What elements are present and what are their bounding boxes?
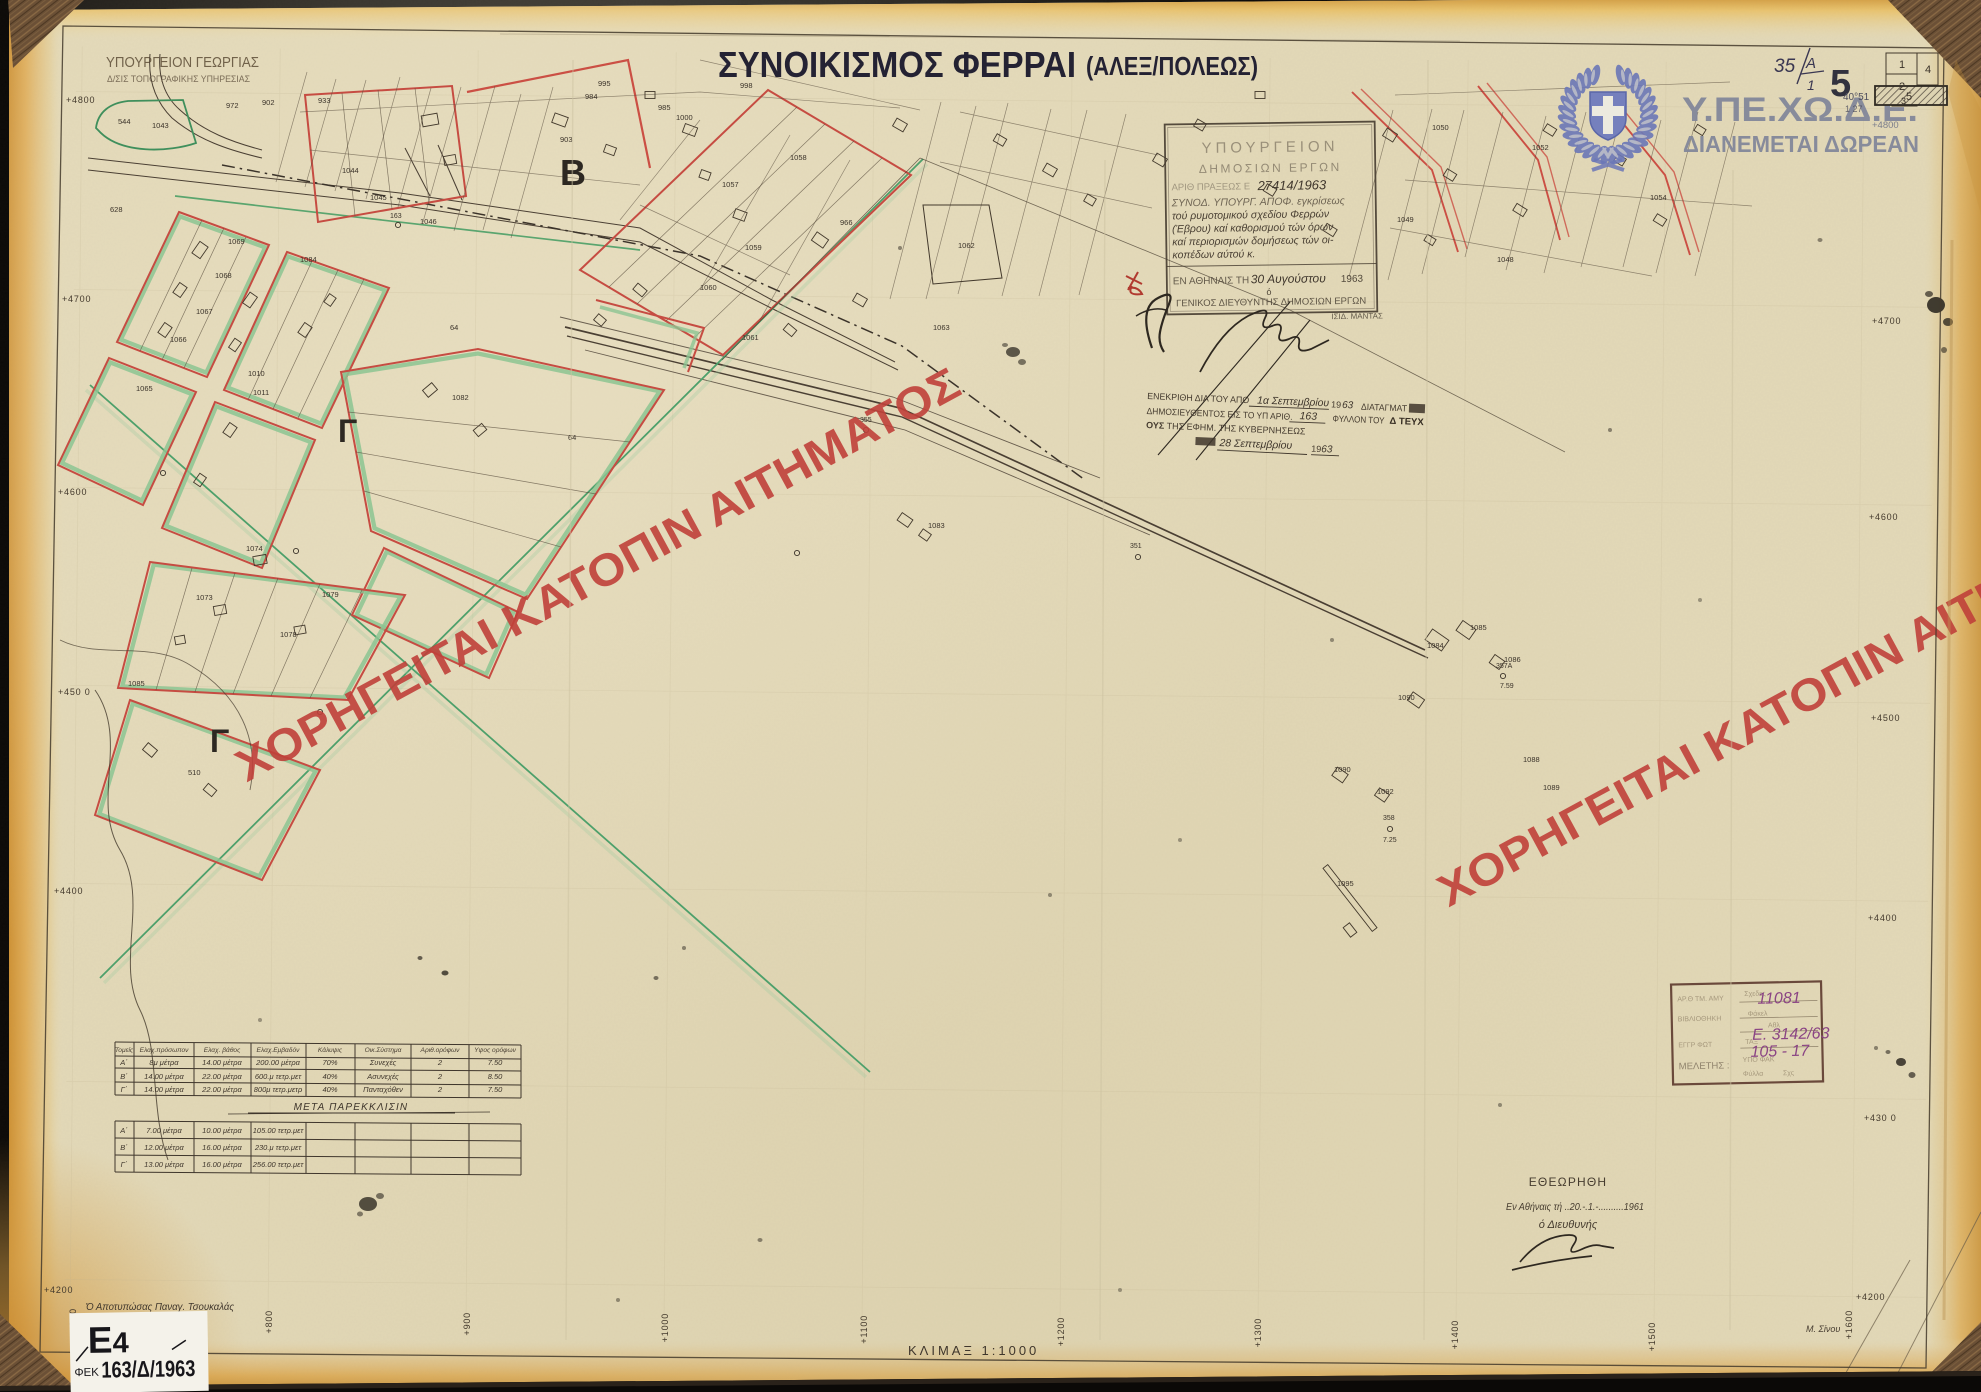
svg-text:230.μ τετρ.μετ: 230.μ τετρ.μετ — [254, 1143, 302, 1152]
svg-text:ΕΘΕΩΡΗΘΗ: ΕΘΕΩΡΗΘΗ — [1529, 1175, 1608, 1189]
svg-text:1084: 1084 — [300, 255, 317, 264]
svg-text:+4200: +4200 — [1856, 1292, 1885, 1302]
svg-text:8.50: 8.50 — [488, 1072, 503, 1081]
svg-text:1050: 1050 — [1432, 123, 1449, 132]
svg-text:ό Διευθυνής: ό Διευθυνής — [1539, 1219, 1598, 1231]
svg-text:Ε. 3142/63: Ε. 3142/63 — [1752, 1025, 1830, 1044]
svg-text:510: 510 — [188, 768, 201, 777]
svg-text:35: 35 — [1774, 56, 1796, 77]
svg-text:1057: 1057 — [722, 180, 739, 189]
svg-text:Δ/ΣΙΣ ΤΟΠΟΓΡΑΦΙΚΗΣ ΥΠΗΡΕΣΙΑΣ: Δ/ΣΙΣ ΤΟΠΟΓΡΑΦΙΚΗΣ ΥΠΗΡΕΣΙΑΣ — [107, 74, 250, 84]
svg-text:1068: 1068 — [215, 271, 232, 280]
svg-text:1058: 1058 — [790, 153, 807, 162]
svg-text:63: 63 — [1342, 400, 1354, 411]
svg-text:κοπέδων αύτού κ.: κοπέδων αύτού κ. — [1172, 248, 1255, 261]
svg-text:256.00 τετρ.μετ: 256.00 τετρ.μετ — [252, 1160, 305, 1169]
svg-text:ΕΝ ΑΘΗΝΑΙΣ ΤΗ: ΕΝ ΑΘΗΝΑΙΣ ΤΗ — [1173, 275, 1250, 287]
svg-text:12.00 μέτρα: 12.00 μέτρα — [144, 1143, 184, 1152]
svg-text:19: 19 — [1311, 444, 1321, 454]
svg-text:+4400: +4400 — [54, 886, 83, 896]
svg-text:14.00 μέτρα: 14.00 μέτρα — [144, 1085, 184, 1094]
svg-text:7.00 μέτρα: 7.00 μέτρα — [146, 1126, 182, 1135]
svg-text:1090: 1090 — [1398, 693, 1415, 702]
svg-text:+1200: +1200 — [1056, 1317, 1066, 1346]
svg-text:1069: 1069 — [228, 237, 245, 246]
svg-text:Α: Α — [1805, 55, 1816, 72]
svg-text:1060: 1060 — [700, 283, 717, 292]
svg-text:2: 2 — [437, 1085, 443, 1094]
svg-text:Ελαχ.πρόσωπον: Ελαχ.πρόσωπον — [140, 1046, 190, 1054]
svg-text:Υψος ορόφων: Υψος ορόφων — [474, 1046, 516, 1054]
svg-text:7.25: 7.25 — [1383, 837, 1397, 844]
svg-text:22.00 μέτρα: 22.00 μέτρα — [201, 1085, 242, 1094]
svg-text:1073: 1073 — [196, 593, 213, 602]
svg-text:2: 2 — [437, 1072, 443, 1081]
svg-text:1085: 1085 — [1470, 623, 1487, 632]
svg-text:14.00 μέτρα: 14.00 μέτρα — [144, 1072, 184, 1081]
svg-text:Γ΄: Γ΄ — [121, 1160, 128, 1169]
svg-text:1061: 1061 — [742, 333, 759, 342]
svg-text:933: 933 — [318, 96, 331, 105]
svg-text:καί περιορισμών δομήσεως τών ο: καί περιορισμών δομήσεως τών οι- — [1172, 234, 1334, 248]
svg-text:ΒΙΒΛΙΟΘΗΚΗ: ΒΙΒΛΙΟΘΗΚΗ — [1678, 1015, 1722, 1023]
svg-text:10.00 μέτρα: 10.00 μέτρα — [202, 1126, 242, 1135]
svg-text:+1600: +1600 — [1844, 1310, 1854, 1339]
svg-text:1090: 1090 — [1334, 765, 1351, 774]
svg-text:1079: 1079 — [322, 590, 339, 599]
svg-text:(ΑΛΕΞ/ΠΟΛΕΩΣ): (ΑΛΕΞ/ΠΟΛΕΩΣ) — [1086, 53, 1258, 81]
svg-text:ΑΡ.Θ ΤΜ. ΑΜΥ: ΑΡ.Θ ΤΜ. ΑΜΥ — [1677, 995, 1724, 1003]
svg-text:+4200: +4200 — [44, 1285, 73, 1295]
svg-text:70%: 70% — [322, 1058, 337, 1067]
svg-text:+1500: +1500 — [1647, 1322, 1657, 1351]
svg-text:ΦΕΚ: ΦΕΚ — [74, 1367, 99, 1379]
svg-text:14.00 μέτρα: 14.00 μέτρα — [202, 1058, 242, 1067]
svg-text:+1100: +1100 — [859, 1315, 869, 1344]
svg-text:1010: 1010 — [248, 369, 265, 378]
svg-text:Κάλυψις: Κάλυψις — [318, 1046, 343, 1054]
svg-text:357A: 357A — [1496, 663, 1513, 670]
svg-text:ΜΕΛΕΤΗΣ :: ΜΕΛΕΤΗΣ : — [1679, 1060, 1730, 1072]
svg-text:8μ μέτρα: 8μ μέτρα — [149, 1058, 179, 1067]
svg-text:27414/1963: 27414/1963 — [1256, 177, 1327, 193]
svg-text:1046: 1046 — [420, 217, 437, 226]
svg-text:1067: 1067 — [196, 307, 213, 316]
svg-text:1 27: 1 27 — [1845, 104, 1863, 114]
svg-text:16.00 μέτρα: 16.00 μέτρα — [202, 1143, 242, 1152]
svg-text:ΔΗΜΟΣΙΩΝ ΕΡΓΩΝ: ΔΗΜΟΣΙΩΝ ΕΡΓΩΝ — [1199, 160, 1342, 176]
svg-text:ΦΥΛΛΟΝ ΤΟΥ: ΦΥΛΛΟΝ ΤΟΥ — [1332, 414, 1384, 426]
svg-text:163: 163 — [1299, 410, 1317, 423]
svg-text:Εν Αθήναις τή ..20.-.1.-......: Εν Αθήναις τή ..20.-.1.-..........1961 — [1506, 1201, 1644, 1213]
svg-text:1065: 1065 — [136, 384, 153, 393]
svg-text:+450 0: +450 0 — [58, 687, 91, 697]
svg-text:1085: 1085 — [128, 679, 145, 688]
svg-text:966: 966 — [840, 218, 853, 227]
svg-text:+4700: +4700 — [1872, 316, 1901, 326]
svg-text:Ασυνεχές: Ασυνεχές — [366, 1072, 399, 1081]
svg-text:19: 19 — [1331, 399, 1341, 409]
svg-text:1082: 1082 — [452, 393, 469, 402]
svg-text:902: 902 — [262, 98, 275, 107]
svg-text:ΑΡΙΘ ΠΡΑΞΕΩΣ Ε: ΑΡΙΘ ΠΡΑΞΕΩΣ Ε — [1171, 181, 1250, 193]
svg-text:1066: 1066 — [170, 335, 187, 344]
svg-text:Ελαχ.Εμβαδόν: Ελαχ.Εμβαδόν — [257, 1046, 301, 1054]
svg-text:1078: 1078 — [280, 630, 297, 639]
svg-text:+900: +900 — [462, 1312, 472, 1335]
svg-text:1044: 1044 — [342, 166, 359, 175]
svg-text:1963: 1963 — [1341, 274, 1364, 285]
svg-text:2: 2 — [437, 1058, 443, 1067]
svg-text:4: 4 — [1925, 64, 1931, 76]
svg-text:16.00 μέτρα: 16.00 μέτρα — [202, 1160, 242, 1169]
svg-text:995: 995 — [598, 79, 611, 88]
svg-text:Γ΄: Γ΄ — [121, 1085, 128, 1094]
svg-text:2: 2 — [1899, 81, 1905, 93]
svg-text:544: 544 — [118, 117, 131, 126]
svg-text:Β΄: Β΄ — [120, 1143, 128, 1152]
svg-text:Α΄: Α΄ — [119, 1058, 128, 1067]
svg-text:+4700: +4700 — [62, 294, 91, 304]
svg-text:Β΄: Β΄ — [120, 1072, 128, 1081]
svg-text:ό: ό — [1266, 287, 1271, 297]
svg-text:7.50: 7.50 — [488, 1058, 503, 1067]
svg-text:ΔΙΑΝΕΜΕΤΑΙ ΔΩΡΕΑΝ: ΔΙΑΝΕΜΕΤΑΙ ΔΩΡΕΑΝ — [1683, 131, 1919, 157]
svg-text:5: 5 — [1906, 91, 1912, 103]
svg-text:64: 64 — [450, 323, 458, 332]
svg-text:1: 1 — [1899, 59, 1905, 71]
svg-text:600.μ τετρ.μετ: 600.μ τετρ.μετ — [255, 1072, 302, 1081]
svg-text:163/Δ/1963: 163/Δ/1963 — [101, 1355, 195, 1383]
svg-text:985: 985 — [658, 103, 671, 112]
svg-text:13.00 μέτρα: 13.00 μέτρα — [144, 1160, 184, 1169]
svg-text:Τομείς: Τομείς — [115, 1046, 134, 1054]
svg-text:(Έβρου) καί καθορισμού τών όρω: (Έβρου) καί καθορισμού τών όρων — [1172, 221, 1334, 235]
svg-text:+1400: +1400 — [1450, 1320, 1460, 1349]
svg-text:358: 358 — [1383, 815, 1395, 822]
svg-text:Α΄: Α΄ — [119, 1126, 128, 1135]
svg-text:Γ: Γ — [210, 723, 229, 759]
svg-text:+4400: +4400 — [1868, 913, 1897, 923]
svg-text:Συνεχές: Συνεχές — [369, 1058, 397, 1067]
svg-text:351: 351 — [1130, 543, 1142, 550]
svg-text:Οικ.Σύστημα: Οικ.Σύστημα — [365, 1046, 402, 1054]
svg-text:ΙΣΙΔ. ΜΑΝΤΑΣ: ΙΣΙΔ. ΜΑΝΤΑΣ — [1331, 311, 1383, 321]
svg-text:ΥΠΟΥΡΓΕΙΟΝ: ΥΠΟΥΡΓΕΙΟΝ — [1201, 138, 1338, 157]
svg-text:1092: 1092 — [1377, 787, 1394, 796]
svg-text:Αριθ.ορόφων: Αριθ.ορόφων — [420, 1046, 461, 1054]
svg-text:1074: 1074 — [246, 544, 263, 553]
svg-text:200.00 μέτρα: 200.00 μέτρα — [255, 1058, 301, 1067]
svg-text:63: 63 — [1321, 444, 1333, 455]
svg-text:984: 984 — [585, 92, 598, 101]
svg-text:1: 1 — [1807, 77, 1815, 93]
svg-text:Γ: Γ — [338, 413, 357, 449]
svg-text:1048: 1048 — [1497, 255, 1514, 264]
svg-text:1000: 1000 — [676, 113, 693, 122]
svg-text:+1000: +1000 — [660, 1313, 670, 1342]
svg-text:40%: 40% — [322, 1085, 337, 1094]
svg-text:ΚΛΙΜΑΞ 1:1000: ΚΛΙΜΑΞ 1:1000 — [908, 1343, 1039, 1358]
svg-text:Φάκελ: Φάκελ — [1748, 1010, 1768, 1018]
svg-text:1059: 1059 — [745, 243, 762, 252]
svg-text:1062: 1062 — [958, 241, 975, 250]
svg-text:30 Αυγούστου: 30 Αυγούστου — [1251, 271, 1327, 286]
svg-text:1063: 1063 — [933, 323, 950, 332]
svg-text:ΕΓΓΡ ΦΩΤ: ΕΓΓΡ ΦΩΤ — [1678, 1042, 1713, 1050]
svg-text:+4800: +4800 — [66, 95, 95, 105]
svg-text:972: 972 — [226, 101, 239, 110]
svg-text:+800: +800 — [264, 1310, 274, 1333]
svg-text:903: 903 — [560, 135, 573, 144]
svg-text:ΣΥΝΟΔ. ΥΠΟΥΡΓ. ΑΠΟΦ. εγκρίσεω: ΣΥΝΟΔ. ΥΠΟΥΡΓ. ΑΠΟΦ. εγκρίσεως — [1171, 195, 1346, 209]
svg-text:ΥΠΟΥΡΓΕΙΟΝ ΓΕΩΡΓΙΑΣ: ΥΠΟΥΡΓΕΙΟΝ ΓΕΩΡΓΙΑΣ — [106, 55, 259, 71]
svg-text:1088: 1088 — [1523, 755, 1540, 764]
svg-text:ΣΥΝΟΙΚΙΣΜΟΣ ΦΕΡΡΑΙ: ΣΥΝΟΙΚΙΣΜΟΣ ΦΕΡΡΑΙ — [718, 44, 1076, 85]
svg-text:+4600: +4600 — [1869, 512, 1898, 522]
svg-text:7.59: 7.59 — [1500, 683, 1514, 690]
svg-text:+4600: +4600 — [58, 487, 87, 497]
svg-text:Δ ΤΕΥΧ: Δ ΤΕΥΧ — [1389, 416, 1424, 428]
svg-text:+430 0: +430 0 — [1864, 1113, 1897, 1123]
svg-text:1095: 1095 — [1337, 879, 1354, 888]
svg-text:40°51: 40°51 — [1843, 92, 1870, 103]
svg-text:1045: 1045 — [370, 193, 387, 202]
svg-text:1089: 1089 — [1543, 783, 1560, 792]
svg-text:1083: 1083 — [928, 521, 945, 530]
svg-text:1084: 1084 — [1427, 641, 1444, 650]
svg-text:+1300: +1300 — [1253, 1318, 1263, 1347]
svg-text:628: 628 — [110, 205, 123, 214]
svg-text:+4800: +4800 — [1872, 120, 1899, 131]
svg-text:Ό Αποτυπώσας Παναγ. Τσουκαλάς: Ό Αποτυπώσας Παναγ. Τσουκαλάς — [85, 1301, 234, 1313]
svg-text:64: 64 — [568, 433, 576, 442]
svg-text:Πανταχόθεν: Πανταχόθεν — [363, 1085, 403, 1094]
svg-text:τού ρυμοτομικού σχεδίου Φερρών: τού ρυμοτομικού σχεδίου Φερρών — [1172, 208, 1330, 222]
svg-text:1011: 1011 — [253, 388, 269, 397]
svg-text:11081: 11081 — [1757, 990, 1801, 1008]
svg-text:Μ. Σίνου: Μ. Σίνου — [1806, 1324, 1840, 1334]
svg-text:+4500: +4500 — [1871, 713, 1900, 723]
svg-text:105 - 17: 105 - 17 — [1750, 1043, 1810, 1061]
svg-text:7.50: 7.50 — [488, 1085, 503, 1094]
svg-text:1052: 1052 — [1532, 143, 1549, 152]
svg-text:105.00 τετρ.μετ: 105.00 τετρ.μετ — [253, 1126, 305, 1135]
svg-text:Φύλλα: Φύλλα — [1743, 1070, 1764, 1078]
svg-text:1049: 1049 — [1397, 215, 1414, 224]
svg-text:Σχς: Σχς — [1783, 1070, 1795, 1077]
svg-text:Ελαχ. βάθος: Ελαχ. βάθος — [204, 1046, 241, 1054]
svg-text:1043: 1043 — [152, 121, 169, 130]
svg-text:ΔΙΑΤΑΓΜΑΤ: ΔΙΑΤΑΓΜΑΤ — [1361, 402, 1408, 414]
svg-text:800μ τετρ.μετρ: 800μ τετρ.μετρ — [254, 1085, 303, 1094]
svg-text:40%: 40% — [322, 1072, 337, 1081]
svg-text:ΜΕΤΑ ΠΑΡΕΚΚΛΙΣΙΝ: ΜΕΤΑ ΠΑΡΕΚΚΛΙΣΙΝ — [294, 1102, 409, 1113]
svg-text:163: 163 — [390, 213, 402, 220]
svg-text:1054: 1054 — [1650, 193, 1667, 202]
svg-text:22.00 μέτρα: 22.00 μέτρα — [201, 1072, 242, 1081]
